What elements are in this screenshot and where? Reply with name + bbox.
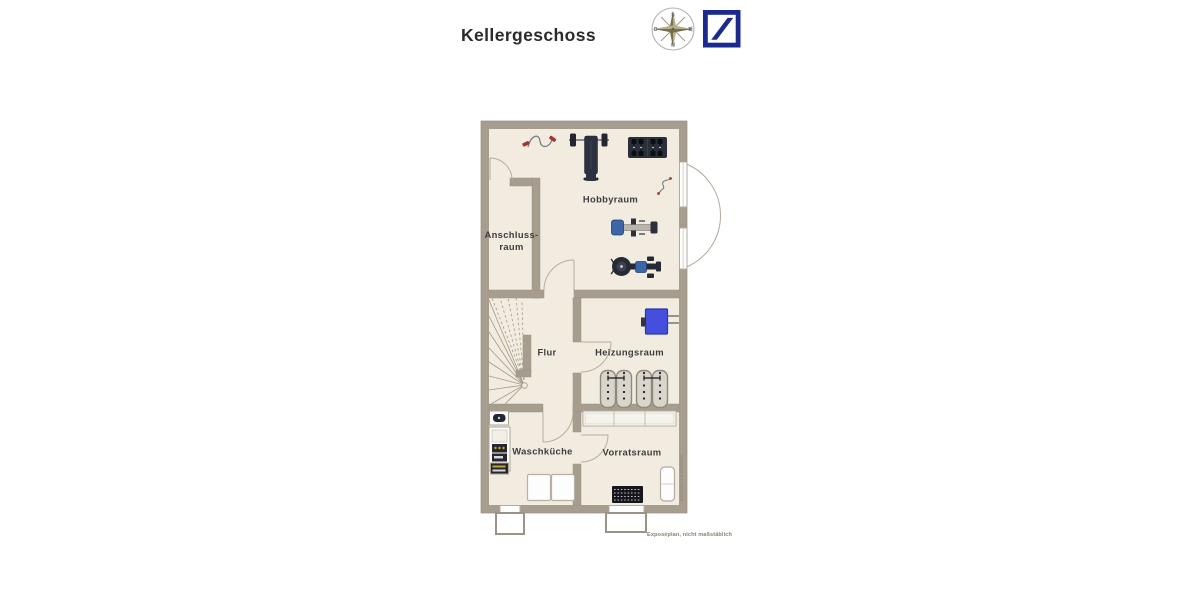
room-label-anschlussraum-line1: Anschluss- bbox=[484, 229, 538, 240]
vertical-watermark: Exposéplan, nicht maßstäblich bbox=[680, 455, 684, 501]
bank-slash-logo-icon bbox=[703, 10, 741, 48]
light-well-icons bbox=[496, 513, 646, 534]
compass-icon: S N O W bbox=[652, 8, 694, 50]
washer-dryer-stack-icon bbox=[489, 427, 510, 474]
sink-icon bbox=[490, 411, 509, 425]
room-label-flur: Flur bbox=[537, 347, 556, 358]
washing-machines-icon bbox=[528, 475, 575, 501]
floorplan-page: S N O W bbox=[0, 0, 1200, 600]
compass-letter-w: W bbox=[687, 27, 693, 32]
page-title: Kellergeschoss bbox=[461, 25, 596, 46]
room-label-waschkueche: Waschküche bbox=[512, 446, 572, 457]
room-label-vorratsraum: Vorratsraum bbox=[603, 446, 662, 457]
compass-letter-s: S bbox=[671, 13, 675, 19]
radiator-icon bbox=[661, 467, 675, 501]
floor-plan: Exposéplan, nicht maßstäblich bbox=[481, 121, 721, 534]
room-label-anschlussraum: Anschluss- raum bbox=[484, 229, 538, 252]
compass-letter-o: O bbox=[653, 27, 657, 33]
doormat-icon bbox=[612, 486, 643, 503]
scale-disclaimer: Exposéplan, nicht maßstäblich bbox=[647, 532, 732, 538]
floorplan-drawing: S N O W bbox=[0, 0, 1200, 600]
room-label-anschlussraum-line2: raum bbox=[484, 240, 538, 251]
compass-letter-n: N bbox=[671, 43, 675, 49]
room-label-hobbyraum: Hobbyraum bbox=[583, 193, 638, 204]
room-label-heizungsraum: Heizungsraum bbox=[595, 346, 664, 357]
dumbbell-rack-icon bbox=[628, 137, 667, 158]
shelf-icon bbox=[583, 411, 676, 426]
